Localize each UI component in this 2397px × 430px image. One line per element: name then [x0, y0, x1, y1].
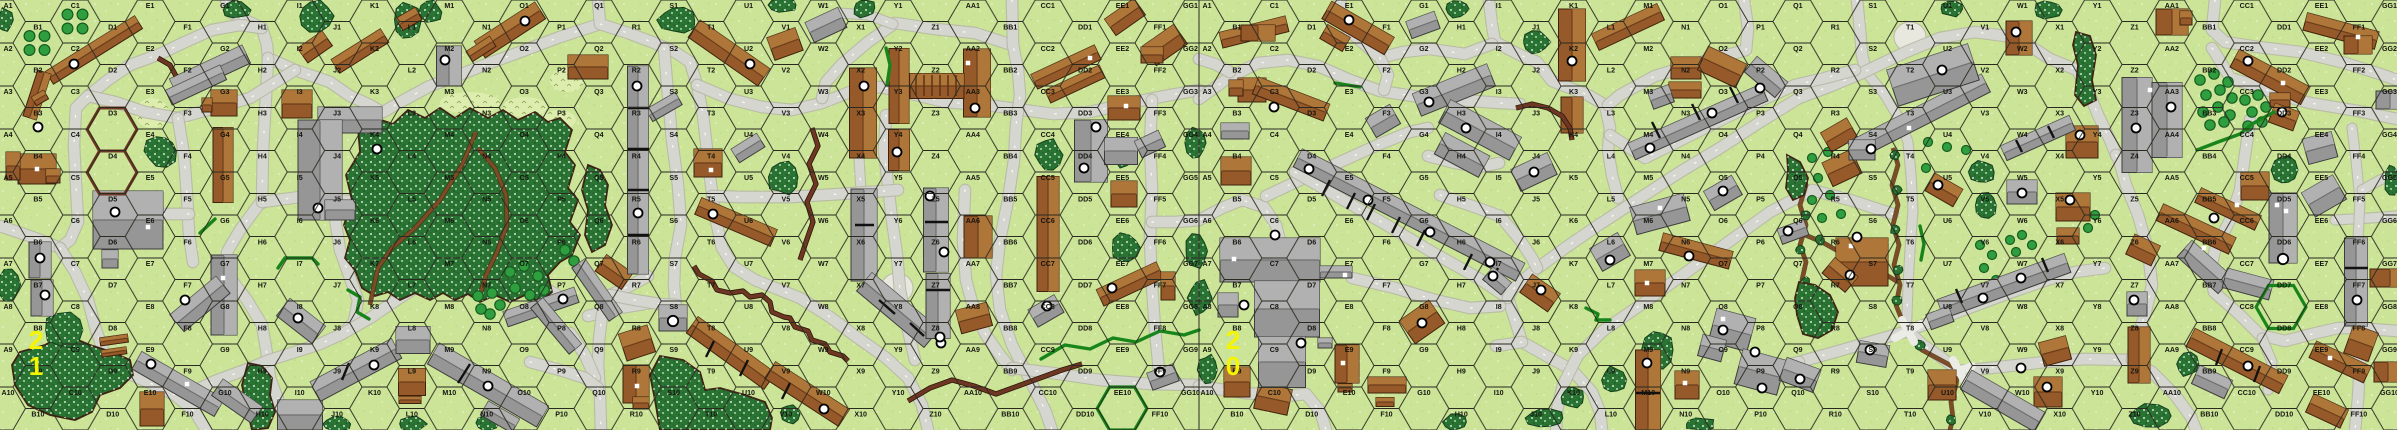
svg-text:E4: E4 [1345, 131, 1354, 139]
svg-text:Z3: Z3 [2130, 110, 2138, 118]
svg-text:V7: V7 [1981, 282, 1990, 290]
svg-text:D4: D4 [108, 153, 117, 161]
svg-text:G8: G8 [1419, 303, 1429, 311]
svg-text:B7: B7 [33, 282, 42, 290]
svg-text:A6: A6 [3, 217, 12, 225]
svg-text:N4: N4 [482, 153, 491, 161]
svg-text:R2: R2 [632, 67, 641, 75]
svg-text:H9: H9 [1457, 368, 1466, 376]
svg-text:X10: X10 [854, 411, 867, 419]
svg-text:J5: J5 [333, 196, 341, 204]
svg-text:R1: R1 [632, 24, 641, 32]
svg-text:Q10: Q10 [1791, 389, 1804, 397]
svg-text:BB8: BB8 [2202, 325, 2216, 333]
svg-text:EE4: EE4 [2315, 131, 2328, 139]
svg-text:AA3: AA3 [2165, 88, 2179, 96]
svg-text:GG5: GG5 [2382, 174, 2397, 182]
svg-text:GG10: GG10 [2380, 389, 2397, 397]
svg-text:M4: M4 [444, 131, 454, 139]
svg-text:Q5: Q5 [1793, 174, 1803, 182]
svg-text:H9: H9 [258, 368, 267, 376]
svg-text:W9: W9 [2017, 346, 2028, 354]
svg-text:S6: S6 [1868, 217, 1877, 225]
svg-text:Q1: Q1 [1793, 2, 1803, 10]
svg-text:B1: B1 [33, 24, 42, 32]
svg-text:EE1: EE1 [1116, 2, 1129, 10]
svg-text:DD4: DD4 [2277, 153, 2291, 161]
svg-text:S4: S4 [669, 131, 678, 139]
svg-text:F6: F6 [1382, 239, 1390, 247]
svg-text:Y8: Y8 [2093, 303, 2102, 311]
svg-text:H10: H10 [256, 411, 269, 419]
svg-text:S5: S5 [1868, 174, 1877, 182]
svg-text:Q2: Q2 [594, 45, 604, 53]
svg-text:FF2: FF2 [2353, 67, 2366, 75]
svg-text:U8: U8 [744, 303, 753, 311]
svg-text:L4: L4 [1607, 153, 1615, 161]
svg-text:O5: O5 [1718, 174, 1728, 182]
svg-text:N1: N1 [1681, 24, 1690, 32]
svg-text:G9: G9 [220, 346, 230, 354]
svg-text:Y1: Y1 [2093, 2, 2102, 10]
svg-text:G6: G6 [1419, 217, 1429, 225]
svg-text:AA6: AA6 [966, 217, 980, 225]
svg-text:H4: H4 [1457, 153, 1466, 161]
svg-text:X2: X2 [856, 67, 865, 75]
svg-text:U7: U7 [1943, 260, 1952, 268]
svg-text:P5: P5 [1756, 196, 1765, 204]
svg-text:W10: W10 [816, 389, 831, 397]
svg-text:Y5: Y5 [894, 174, 903, 182]
svg-text:O2: O2 [519, 45, 529, 53]
svg-text:DD3: DD3 [2277, 110, 2291, 118]
svg-text:H2: H2 [1457, 67, 1466, 75]
svg-text:GG3: GG3 [1183, 88, 1198, 96]
svg-text:L1: L1 [1607, 24, 1615, 32]
svg-text:GG3: GG3 [2382, 88, 2397, 96]
svg-text:R2: R2 [1831, 67, 1840, 75]
svg-text:Q7: Q7 [1793, 260, 1803, 268]
svg-text:Q5: Q5 [594, 174, 604, 182]
svg-text:M3: M3 [1643, 88, 1653, 96]
svg-text:E7: E7 [146, 260, 155, 268]
svg-text:A1: A1 [3, 2, 12, 10]
svg-text:M5: M5 [1643, 174, 1653, 182]
svg-text:X6: X6 [2055, 239, 2064, 247]
svg-text:P9: P9 [1756, 368, 1765, 376]
svg-text:GG4: GG4 [1183, 131, 1198, 139]
svg-text:BB4: BB4 [1003, 153, 1017, 161]
svg-text:Y9: Y9 [2093, 346, 2102, 354]
svg-text:P2: P2 [1756, 67, 1765, 75]
svg-text:F4: F4 [1382, 153, 1390, 161]
svg-text:F8: F8 [1382, 325, 1390, 333]
svg-text:CC2: CC2 [2240, 45, 2254, 53]
svg-text:K1: K1 [1569, 2, 1578, 10]
svg-text:O4: O4 [519, 131, 529, 139]
svg-text:I7: I7 [1496, 260, 1502, 268]
svg-text:E1: E1 [1345, 2, 1354, 10]
svg-text:K5: K5 [370, 174, 379, 182]
svg-text:S3: S3 [669, 88, 678, 96]
svg-text:N6: N6 [482, 239, 491, 247]
svg-text:R3: R3 [632, 110, 641, 118]
svg-text:W10: W10 [2015, 389, 2030, 397]
svg-text:J4: J4 [1532, 153, 1540, 161]
svg-text:Z4: Z4 [2130, 153, 2138, 161]
svg-text:D3: D3 [108, 110, 117, 118]
svg-text:E4: E4 [146, 131, 155, 139]
svg-text:O7: O7 [1718, 260, 1728, 268]
svg-text:M6: M6 [1643, 217, 1653, 225]
svg-text:H5: H5 [1457, 196, 1466, 204]
svg-text:Q6: Q6 [1793, 217, 1803, 225]
svg-text:F9: F9 [183, 368, 191, 376]
svg-text:A3: A3 [3, 88, 12, 96]
svg-text:O3: O3 [519, 88, 529, 96]
svg-text:X4: X4 [2055, 153, 2064, 161]
svg-text:V9: V9 [782, 368, 791, 376]
svg-text:W6: W6 [2017, 217, 2028, 225]
svg-text:V2: V2 [782, 67, 791, 75]
svg-text:O8: O8 [519, 303, 529, 311]
svg-text:AA10: AA10 [2163, 389, 2181, 397]
svg-text:D3: D3 [1307, 110, 1316, 118]
svg-text:A2: A2 [1202, 45, 1211, 53]
svg-text:Z10: Z10 [2128, 411, 2140, 419]
svg-text:FF9: FF9 [1154, 368, 1167, 376]
svg-text:AA7: AA7 [966, 260, 980, 268]
svg-text:W1: W1 [2017, 2, 2028, 10]
svg-text:S6: S6 [669, 217, 678, 225]
svg-text:I1: I1 [1496, 2, 1502, 10]
svg-text:CC2: CC2 [1041, 45, 1055, 53]
svg-text:X2: X2 [2055, 67, 2064, 75]
svg-text:G9: G9 [1419, 346, 1429, 354]
svg-text:Q3: Q3 [594, 88, 604, 96]
svg-text:A5: A5 [3, 174, 12, 182]
svg-text:Z6: Z6 [931, 239, 939, 247]
svg-text:E9: E9 [146, 346, 155, 354]
svg-text:D8: D8 [1307, 325, 1316, 333]
svg-text:U6: U6 [744, 217, 753, 225]
svg-text:R10: R10 [1829, 411, 1842, 419]
svg-text:X1: X1 [856, 24, 865, 32]
svg-text:J10: J10 [1530, 411, 1542, 419]
svg-text:T7: T7 [707, 282, 715, 290]
svg-text:GG7: GG7 [1183, 260, 1198, 268]
svg-text:K1: K1 [370, 2, 379, 10]
svg-text:L6: L6 [1607, 239, 1615, 247]
svg-text:GG6: GG6 [1183, 217, 1198, 225]
svg-text:E7: E7 [1345, 260, 1354, 268]
svg-text:R8: R8 [1831, 325, 1840, 333]
svg-text:BB9: BB9 [1003, 368, 1017, 376]
svg-text:Z7: Z7 [931, 282, 939, 290]
svg-text:FF10: FF10 [2351, 411, 2368, 419]
svg-text:X5: X5 [2055, 196, 2064, 204]
svg-text:F1: F1 [183, 24, 191, 32]
svg-text:L10: L10 [406, 411, 418, 419]
svg-text:J10: J10 [331, 411, 343, 419]
svg-text:K3: K3 [370, 88, 379, 96]
svg-text:BB1: BB1 [2202, 24, 2216, 32]
svg-text:K9: K9 [370, 346, 379, 354]
svg-text:Z5: Z5 [2130, 196, 2138, 204]
svg-text:M1: M1 [1643, 2, 1653, 10]
svg-text:J9: J9 [333, 368, 341, 376]
svg-text:EE5: EE5 [1116, 174, 1129, 182]
svg-text:F5: F5 [1382, 196, 1390, 204]
svg-text:J3: J3 [1532, 110, 1540, 118]
svg-text:L2: L2 [1607, 67, 1615, 75]
svg-text:W6: W6 [818, 217, 829, 225]
svg-text:D5: D5 [108, 196, 117, 204]
svg-text:N5: N5 [482, 196, 491, 204]
svg-text:M9: M9 [1643, 346, 1653, 354]
svg-text:CC1: CC1 [1041, 2, 1055, 10]
svg-text:A10: A10 [1, 389, 14, 397]
svg-text:G5: G5 [220, 174, 230, 182]
svg-text:B2: B2 [33, 67, 42, 75]
svg-text:X4: X4 [856, 153, 865, 161]
svg-text:S3: S3 [1868, 88, 1877, 96]
svg-text:CC4: CC4 [2240, 131, 2254, 139]
svg-text:D9: D9 [108, 368, 117, 376]
svg-text:T4: T4 [707, 153, 715, 161]
svg-text:C1: C1 [1270, 2, 1279, 10]
svg-text:R9: R9 [1831, 368, 1840, 376]
svg-text:D6: D6 [108, 239, 117, 247]
svg-text:Q9: Q9 [1793, 346, 1803, 354]
svg-text:D7: D7 [108, 282, 117, 290]
svg-text:O10: O10 [517, 389, 530, 397]
svg-text:FF3: FF3 [1154, 110, 1167, 118]
svg-text:GG10: GG10 [1181, 389, 1200, 397]
svg-text:O7: O7 [519, 260, 529, 268]
svg-text:X5: X5 [856, 196, 865, 204]
svg-text:H8: H8 [1457, 325, 1466, 333]
svg-text:I4: I4 [1496, 131, 1502, 139]
svg-text:C7: C7 [1270, 260, 1279, 268]
svg-text:B3: B3 [1232, 110, 1241, 118]
svg-text:L7: L7 [408, 282, 416, 290]
svg-text:C3: C3 [71, 88, 80, 96]
svg-text:BB7: BB7 [1003, 282, 1017, 290]
svg-text:CC10: CC10 [1039, 389, 1057, 397]
svg-text:F7: F7 [183, 282, 191, 290]
svg-text:S9: S9 [1868, 346, 1877, 354]
svg-text:Y5: Y5 [2093, 174, 2102, 182]
svg-text:N2: N2 [482, 67, 491, 75]
svg-text:X10: X10 [2053, 411, 2066, 419]
svg-text:BB5: BB5 [1003, 196, 1017, 204]
svg-text:EE4: EE4 [1116, 131, 1129, 139]
svg-text:Z10: Z10 [929, 411, 941, 419]
svg-text:T2: T2 [707, 67, 715, 75]
svg-text:V3: V3 [782, 110, 791, 118]
svg-text:F10: F10 [181, 411, 193, 419]
svg-text:Q1: Q1 [594, 2, 604, 10]
svg-text:V10: V10 [1979, 411, 1992, 419]
svg-text:M10: M10 [442, 389, 456, 397]
svg-text:H8: H8 [258, 325, 267, 333]
svg-text:G3: G3 [220, 88, 230, 96]
svg-text:FF1: FF1 [2353, 24, 2366, 32]
svg-text:W4: W4 [818, 131, 829, 139]
svg-text:R5: R5 [632, 196, 641, 204]
svg-text:P9: P9 [557, 368, 566, 376]
svg-text:U4: U4 [744, 131, 753, 139]
svg-text:H6: H6 [1457, 239, 1466, 247]
svg-text:L5: L5 [1607, 196, 1615, 204]
svg-text:V6: V6 [1981, 239, 1990, 247]
svg-text:FF4: FF4 [1154, 153, 1167, 161]
svg-text:T5: T5 [1906, 196, 1914, 204]
svg-text:M8: M8 [444, 303, 454, 311]
svg-text:L10: L10 [1605, 411, 1617, 419]
svg-text:O4: O4 [1718, 131, 1728, 139]
svg-text:R3: R3 [1831, 110, 1840, 118]
svg-text:A8: A8 [3, 303, 12, 311]
svg-text:Z9: Z9 [931, 368, 939, 376]
svg-text:AA3: AA3 [966, 88, 980, 96]
svg-text:K8: K8 [1569, 303, 1578, 311]
svg-text:O6: O6 [1718, 217, 1728, 225]
svg-text:FF6: FF6 [1154, 239, 1167, 247]
svg-text:G1: G1 [1419, 2, 1429, 10]
svg-text:EE1: EE1 [2315, 2, 2328, 10]
svg-text:D5: D5 [1307, 196, 1316, 204]
svg-text:BB10: BB10 [1001, 411, 1019, 419]
svg-text:P2: P2 [557, 67, 566, 75]
svg-text:V8: V8 [782, 325, 791, 333]
svg-text:G10: G10 [1417, 389, 1430, 397]
svg-text:G8: G8 [220, 303, 230, 311]
svg-text:W9: W9 [818, 346, 829, 354]
svg-text:H6: H6 [258, 239, 267, 247]
svg-text:BB6: BB6 [1003, 239, 1017, 247]
svg-text:P7: P7 [557, 282, 566, 290]
svg-text:D9: D9 [1307, 368, 1316, 376]
svg-text:FF2: FF2 [1154, 67, 1167, 75]
svg-text:C3: C3 [1270, 88, 1279, 96]
svg-text:DD5: DD5 [2277, 196, 2291, 204]
svg-text:DD6: DD6 [2277, 239, 2291, 247]
svg-text:Y2: Y2 [894, 45, 903, 53]
svg-text:F6: F6 [183, 239, 191, 247]
svg-text:AA6: AA6 [2165, 217, 2179, 225]
svg-text:V1: V1 [1981, 24, 1990, 32]
svg-text:K8: K8 [370, 303, 379, 311]
svg-text:GG9: GG9 [1183, 346, 1198, 354]
svg-text:GG7: GG7 [2382, 260, 2397, 268]
svg-text:D1: D1 [108, 24, 117, 32]
svg-text:DD9: DD9 [2277, 368, 2291, 376]
svg-text:E1: E1 [146, 2, 155, 10]
svg-text:CC6: CC6 [2240, 217, 2254, 225]
svg-text:D8: D8 [108, 325, 117, 333]
svg-text:A9: A9 [1202, 346, 1211, 354]
svg-text:T3: T3 [1906, 110, 1914, 118]
svg-text:G3: G3 [1419, 88, 1429, 96]
svg-text:J1: J1 [333, 24, 341, 32]
svg-text:N6: N6 [1681, 239, 1690, 247]
svg-text:N9: N9 [482, 368, 491, 376]
svg-text:AA9: AA9 [966, 346, 980, 354]
svg-text:E10: E10 [144, 389, 157, 397]
svg-text:J5: J5 [1532, 196, 1540, 204]
svg-text:FF10: FF10 [1152, 411, 1169, 419]
svg-text:P6: P6 [1756, 239, 1765, 247]
svg-text:F2: F2 [1382, 67, 1390, 75]
svg-text:CC9: CC9 [1041, 346, 1055, 354]
svg-text:O9: O9 [519, 346, 529, 354]
svg-text:M1: M1 [444, 2, 454, 10]
svg-text:U10: U10 [1941, 389, 1954, 397]
svg-text:S10: S10 [1866, 389, 1879, 397]
svg-text:Y7: Y7 [2093, 260, 2102, 268]
svg-text:EE3: EE3 [1116, 88, 1129, 96]
svg-text:E2: E2 [1345, 45, 1354, 53]
svg-text:U9: U9 [744, 346, 753, 354]
svg-text:Q4: Q4 [1793, 131, 1803, 139]
svg-text:S2: S2 [669, 45, 678, 53]
svg-text:V6: V6 [782, 239, 791, 247]
svg-text:I8: I8 [1496, 303, 1502, 311]
svg-text:T5: T5 [707, 196, 715, 204]
svg-text:EE7: EE7 [1116, 260, 1129, 268]
svg-text:V9: V9 [1981, 368, 1990, 376]
svg-text:P10: P10 [1754, 411, 1767, 419]
svg-text:Z8: Z8 [931, 325, 939, 333]
svg-text:D2: D2 [108, 67, 117, 75]
svg-text:C5: C5 [1270, 174, 1279, 182]
svg-text:BB2: BB2 [1003, 67, 1017, 75]
svg-text:T4: T4 [1906, 153, 1914, 161]
svg-text:DD10: DD10 [1076, 411, 1094, 419]
svg-text:K7: K7 [1569, 260, 1578, 268]
svg-text:DD7: DD7 [2277, 282, 2291, 290]
svg-text:GG4: GG4 [2382, 131, 2397, 139]
svg-text:G10: G10 [218, 389, 231, 397]
svg-text:V5: V5 [1981, 196, 1990, 204]
svg-text:Y2: Y2 [2093, 45, 2102, 53]
svg-text:1: 1 [29, 351, 43, 381]
svg-text:P8: P8 [557, 325, 566, 333]
svg-text:N3: N3 [482, 110, 491, 118]
svg-text:Y7: Y7 [894, 260, 903, 268]
svg-text:P1: P1 [1756, 24, 1765, 32]
svg-text:I9: I9 [1496, 346, 1502, 354]
svg-text:N10: N10 [1679, 411, 1692, 419]
svg-text:C9: C9 [71, 346, 80, 354]
svg-text:J2: J2 [1532, 67, 1540, 75]
svg-text:W5: W5 [2017, 174, 2028, 182]
svg-text:GG8: GG8 [1183, 303, 1198, 311]
svg-text:R9: R9 [632, 368, 641, 376]
svg-text:EE8: EE8 [2315, 303, 2328, 311]
svg-text:J7: J7 [1532, 282, 1540, 290]
svg-text:DD9: DD9 [1078, 368, 1092, 376]
svg-text:FF5: FF5 [1154, 196, 1167, 204]
svg-text:L5: L5 [408, 196, 416, 204]
svg-text:EE10: EE10 [2313, 389, 2330, 397]
svg-text:E6: E6 [1345, 217, 1354, 225]
svg-text:I6: I6 [297, 217, 303, 225]
svg-text:R6: R6 [1831, 239, 1840, 247]
svg-text:M7: M7 [444, 260, 454, 268]
